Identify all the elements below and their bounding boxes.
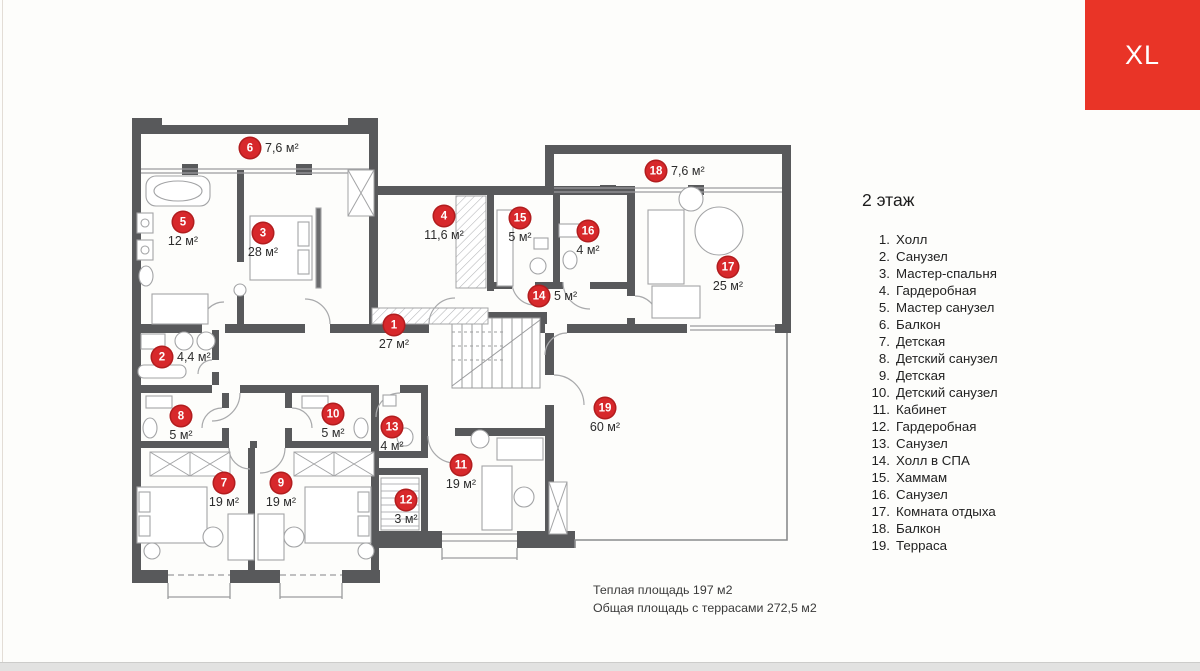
legend-item-number: 9. <box>862 367 890 384</box>
washer <box>175 332 193 350</box>
legend-item: 14.Холл в СПА <box>862 452 1092 469</box>
legend-item-number: 3. <box>862 265 890 282</box>
toilet <box>397 428 413 446</box>
sink <box>559 224 585 237</box>
legend-item-number: 11. <box>862 401 890 418</box>
sink <box>383 395 396 406</box>
legend-item-label: Хаммам <box>896 469 947 486</box>
legend-item-number: 4. <box>862 282 890 299</box>
legend-item: 15.Хаммам <box>862 469 1092 486</box>
legend-item-label: Санузел <box>896 248 948 265</box>
legend-item-number: 8. <box>862 350 890 367</box>
legend-item-label: Санузел <box>896 486 948 503</box>
toilet <box>354 418 368 438</box>
legend-item-number: 10. <box>862 384 890 401</box>
legend-item-number: 1. <box>862 231 890 248</box>
legend-item-number: 18. <box>862 520 890 537</box>
totals-warm-area: Теплая площадь 197 м2 <box>593 581 817 599</box>
table <box>652 286 700 318</box>
sofa <box>648 210 684 284</box>
round-table <box>695 207 743 255</box>
legend-item: 4.Гардеробная <box>862 282 1092 299</box>
desk <box>258 514 284 560</box>
legend-item-number: 5. <box>862 299 890 316</box>
legend-item: 7.Детская <box>862 333 1092 350</box>
legend-item-number: 15. <box>862 469 890 486</box>
legend-item: 11.Кабинет <box>862 401 1092 418</box>
legend-item-label: Мастер-спальня <box>896 265 997 282</box>
legend-item-label: Комната отдыха <box>896 503 996 520</box>
legend-item-label: Балкон <box>896 316 941 333</box>
chair <box>284 527 304 547</box>
legend-item-label: Санузел <box>896 435 948 452</box>
legend-item: 17.Комната отдыха <box>862 503 1092 520</box>
legend-item: 10.Детский санузел <box>862 384 1092 401</box>
legend-item-label: Балкон <box>896 520 941 537</box>
legend-item-label: Детский санузел <box>896 350 998 367</box>
legend-item: 9.Детская <box>862 367 1092 384</box>
legend-item: 12.Гардеробная <box>862 418 1092 435</box>
toilet <box>139 266 153 286</box>
sink <box>302 396 328 408</box>
legend-item: 6.Балкон <box>862 316 1092 333</box>
legend-item-label: Гардеробная <box>896 282 976 299</box>
legend-item-label: Детская <box>896 333 945 350</box>
totals: Теплая площадь 197 м2 Общая площадь с те… <box>593 581 817 617</box>
legend-item-label: Детский санузел <box>896 384 998 401</box>
legend-item-label: Детская <box>896 367 945 384</box>
legend-item-number: 16. <box>862 486 890 503</box>
legend-list: 1.Холл2.Санузел3.Мастер-спальня4.Гардеро… <box>862 231 1092 554</box>
terrace-outline <box>575 333 787 548</box>
bench <box>497 210 513 286</box>
basin <box>530 258 546 274</box>
legend-item-label: Холл <box>896 231 927 248</box>
legend-item: 19.Терраса <box>862 537 1092 554</box>
desk <box>482 466 512 530</box>
xl-logo-badge: XL <box>1085 0 1200 110</box>
stairs <box>452 318 540 388</box>
xl-logo-text: XL <box>1125 40 1160 71</box>
legend-item-number: 12. <box>862 418 890 435</box>
legend-item: 13.Санузел <box>862 435 1092 452</box>
chair <box>514 487 534 507</box>
legend-item-label: Кабинет <box>896 401 947 418</box>
legend-item-label: Мастер санузел <box>896 299 994 316</box>
legend-item-number: 13. <box>862 435 890 452</box>
sink <box>146 396 172 408</box>
legend-item-label: Гардеробная <box>896 418 976 435</box>
legend-item: 2.Санузел <box>862 248 1092 265</box>
legend-item-label: Терраса <box>896 537 947 554</box>
chair <box>203 527 223 547</box>
legend-title: 2 этаж <box>862 190 1092 211</box>
cabinet <box>497 438 543 460</box>
legend-item: 5.Мастер санузел <box>862 299 1092 316</box>
legend-item: 16.Санузел <box>862 486 1092 503</box>
legend: 2 этаж 1.Холл2.Санузел3.Мастер-спальня4.… <box>862 190 1092 554</box>
legend-item: 18.Балкон <box>862 520 1092 537</box>
toilet <box>563 251 577 269</box>
legend-item-number: 19. <box>862 537 890 554</box>
dryer <box>197 332 215 350</box>
totals-full-area: Общая площадь с террасами 272,5 м2 <box>593 599 817 617</box>
legend-item-number: 6. <box>862 316 890 333</box>
toilet <box>143 418 157 438</box>
legend-item-number: 14. <box>862 452 890 469</box>
sink <box>141 334 165 349</box>
desk <box>228 514 254 560</box>
furniture <box>137 176 743 560</box>
page: 127 м²24,4 м²328 м²411,6 м²512 м²67,6 м²… <box>0 0 1200 670</box>
legend-item-number: 7. <box>862 333 890 350</box>
legend-item: 8.Детский санузел <box>862 350 1092 367</box>
legend-item: 1.Холл <box>862 231 1092 248</box>
legend-item-label: Холл в СПА <box>896 452 970 469</box>
legend-item: 3.Мастер-спальня <box>862 265 1092 282</box>
legend-item-number: 17. <box>862 503 890 520</box>
legend-item-number: 2. <box>862 248 890 265</box>
